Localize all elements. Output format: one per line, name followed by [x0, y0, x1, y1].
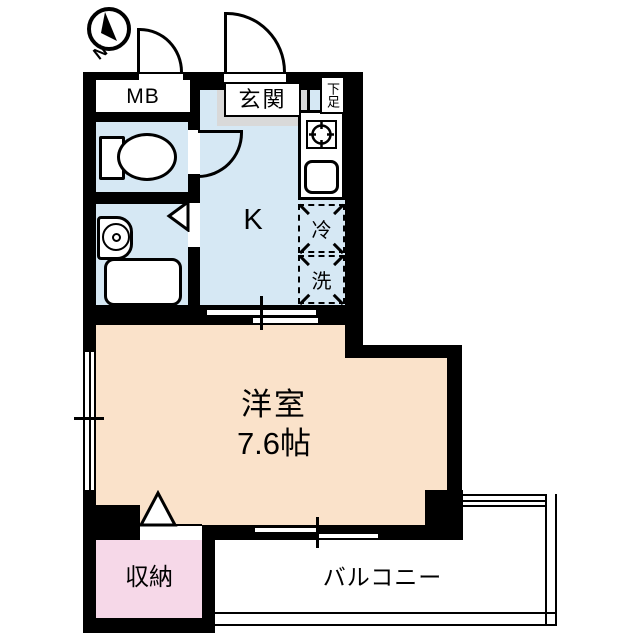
wall-storage-right: [202, 525, 215, 633]
balcony-top-railing: [463, 494, 547, 507]
wall-extension-top: [345, 345, 462, 358]
bathtub: [104, 258, 182, 306]
balcony-sliding-window-panel-1: [253, 526, 319, 534]
storage-door-triangle: [136, 490, 180, 528]
floor-plan: 冷 洗 MB 玄関 下足 K 洋室 7.6帖 収納 バルコニー N: [0, 0, 640, 640]
stove-burner-icon: [306, 120, 337, 149]
kitchen-sink: [304, 160, 339, 194]
kitchen-sliding-door-tick: [260, 296, 263, 330]
wall-right-kitchen: [345, 72, 363, 358]
balcony-sliding-window-panel-2: [316, 532, 380, 540]
main-room-left-window: [83, 352, 96, 490]
wall-corner-chunk: [425, 490, 463, 540]
toilet-bowl: [117, 133, 177, 181]
kitchen-label: K: [228, 202, 278, 238]
balcony-label: バルコニー: [305, 562, 460, 592]
meter-box-label: MB: [96, 80, 190, 112]
balcony-right-railing: [545, 494, 557, 626]
wall-bottom-left-step: [96, 505, 140, 540]
bath-door-triangle: [166, 200, 190, 232]
shoe-box-door-leaf: [307, 80, 310, 110]
washer-label: 洗: [312, 265, 332, 294]
balcony-window-tick: [316, 517, 319, 548]
balcony-bottom-railing: [215, 612, 557, 626]
entrance-label: 玄関: [224, 82, 301, 117]
main-room-name-label: 洋室: [199, 384, 349, 424]
meter-box-door-swing-arc: [140, 28, 183, 72]
refrigerator-space: 冷: [298, 204, 345, 253]
wall-storage-bottom: [83, 618, 215, 633]
left-window-tick: [74, 417, 104, 420]
storage-label: 収納: [102, 563, 196, 593]
washer-space: 洗: [298, 255, 345, 304]
main-room-size-label: 7.6帖: [199, 424, 349, 462]
washbasin-drain: [112, 233, 121, 242]
shoe-box-label: 下足: [320, 76, 345, 114]
wall-extension-right: [447, 345, 462, 490]
entrance-door-swing-arc: [227, 12, 286, 72]
refrigerator-label: 冷: [312, 214, 332, 243]
meter-box-door-opening: [139, 72, 183, 80]
